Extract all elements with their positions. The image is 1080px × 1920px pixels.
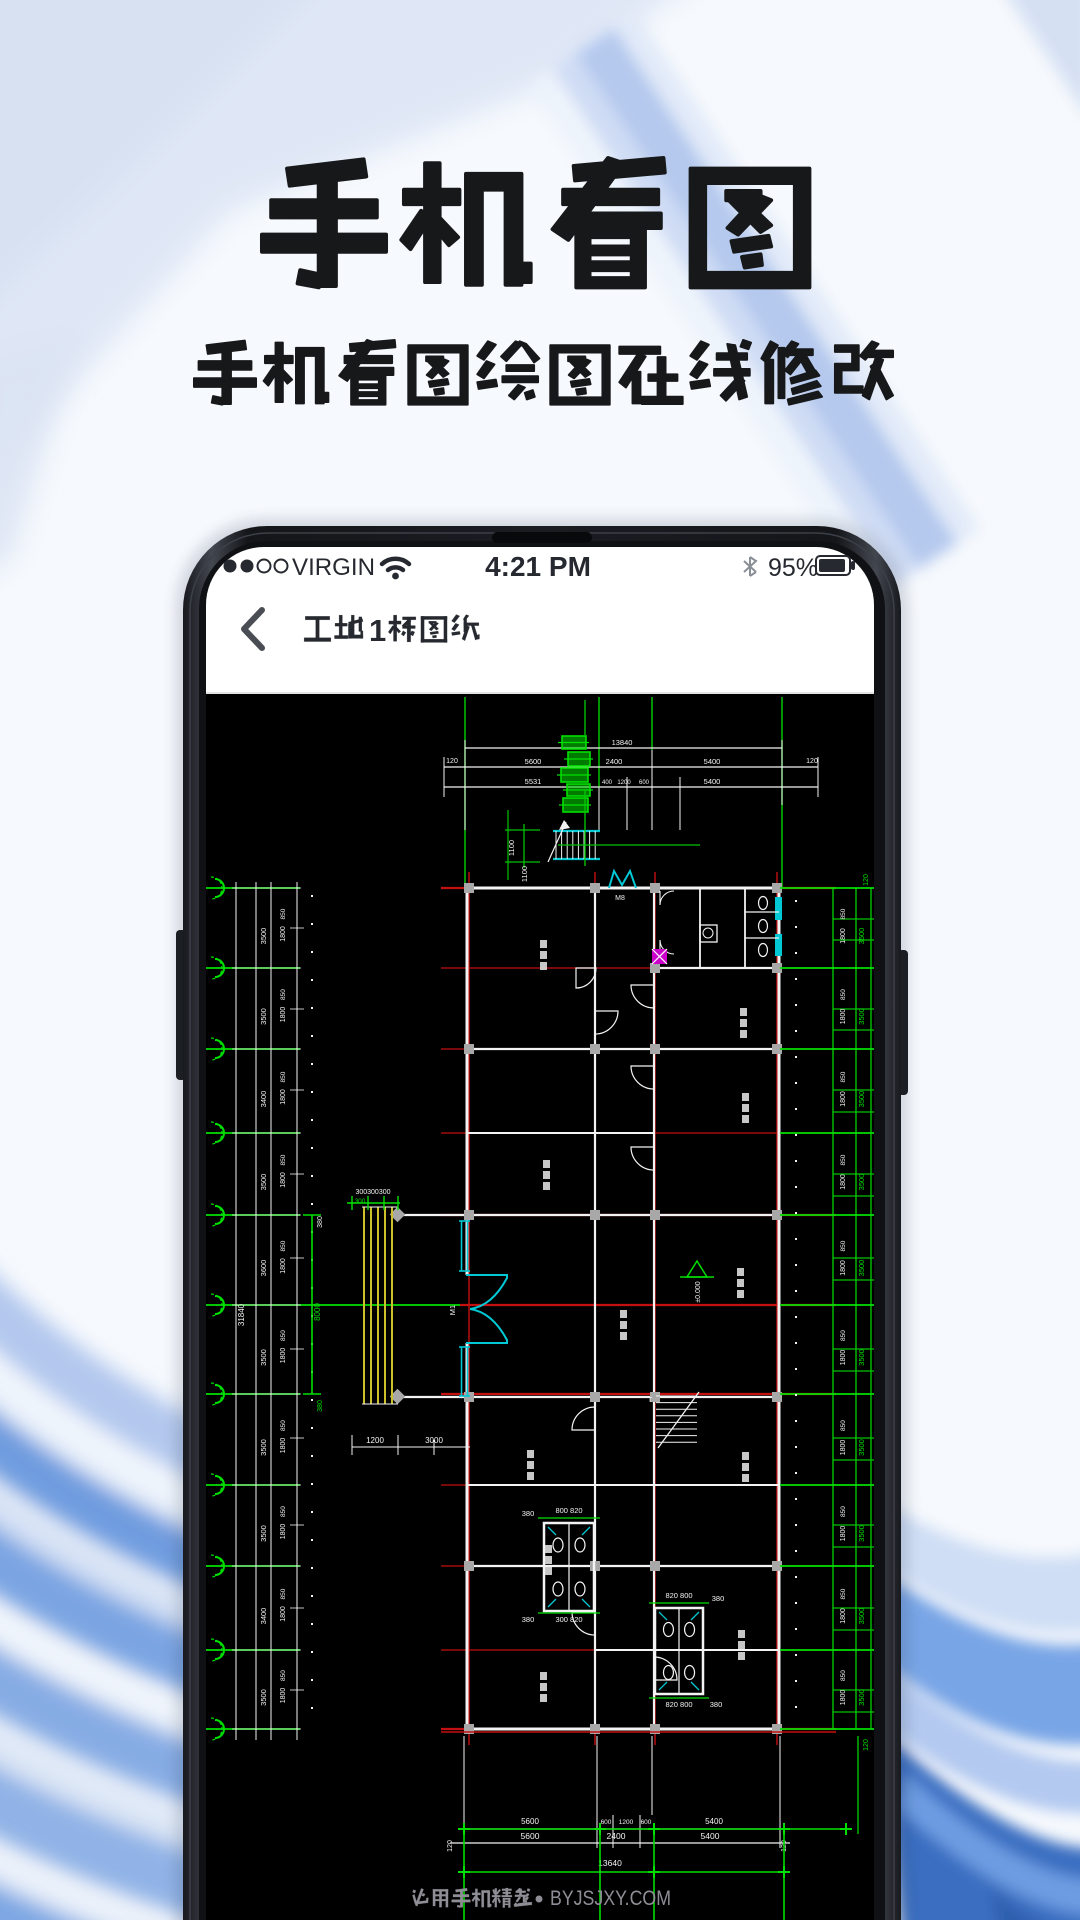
svg-text:120: 120 bbox=[447, 1840, 454, 1852]
svg-text:120: 120 bbox=[863, 1739, 870, 1751]
svg-text:BYJSJXY.COM: BYJSJXY.COM bbox=[550, 1887, 671, 1910]
svg-text:850: 850 bbox=[280, 908, 287, 919]
svg-text:300300300: 300300300 bbox=[355, 1189, 390, 1196]
svg-text:1800: 1800 bbox=[280, 1089, 287, 1105]
svg-text:3500: 3500 bbox=[259, 1174, 268, 1191]
svg-text:850: 850 bbox=[840, 1420, 847, 1431]
svg-text:5400: 5400 bbox=[701, 1831, 720, 1841]
svg-text:3500: 3500 bbox=[857, 1174, 866, 1191]
svg-text:850: 850 bbox=[280, 1420, 287, 1431]
svg-text:1800: 1800 bbox=[840, 1526, 847, 1542]
svg-text:1800: 1800 bbox=[280, 1606, 287, 1622]
svg-text:850: 850 bbox=[840, 908, 847, 919]
svg-text:850: 850 bbox=[280, 1670, 287, 1681]
svg-text:1: 1 bbox=[369, 613, 386, 648]
svg-text:M8: M8 bbox=[615, 895, 625, 902]
svg-text:3500: 3500 bbox=[857, 1349, 866, 1366]
svg-text:850: 850 bbox=[840, 989, 847, 1000]
svg-text:300 820: 300 820 bbox=[555, 1615, 582, 1624]
svg-text:M1: M1 bbox=[448, 1305, 457, 1315]
svg-text:3500: 3500 bbox=[259, 1439, 268, 1456]
svg-text:400: 400 bbox=[602, 780, 613, 786]
svg-text:13840: 13840 bbox=[612, 738, 633, 747]
svg-text:380: 380 bbox=[712, 1594, 725, 1603]
svg-text:380: 380 bbox=[317, 1216, 324, 1228]
svg-text:5600: 5600 bbox=[525, 757, 542, 766]
svg-text:820 800: 820 800 bbox=[665, 1700, 692, 1709]
svg-text:5400: 5400 bbox=[704, 777, 721, 786]
svg-text:13640: 13640 bbox=[598, 1858, 622, 1868]
svg-text:3500: 3500 bbox=[857, 928, 866, 945]
svg-text:95%: 95% bbox=[768, 554, 818, 582]
svg-text:3500: 3500 bbox=[259, 1349, 268, 1366]
svg-text:1800: 1800 bbox=[280, 1688, 287, 1704]
svg-text:850: 850 bbox=[280, 1506, 287, 1517]
svg-text:8000: 8000 bbox=[313, 1303, 322, 1321]
svg-text:2400: 2400 bbox=[606, 757, 623, 766]
svg-text:1200: 1200 bbox=[366, 1436, 384, 1445]
svg-text:1200: 1200 bbox=[619, 1819, 634, 1826]
svg-text:1200: 1200 bbox=[617, 780, 631, 786]
svg-text:850: 850 bbox=[840, 1506, 847, 1517]
svg-text:3500: 3500 bbox=[857, 1525, 866, 1542]
svg-text:T: T bbox=[648, 1397, 653, 1404]
svg-text:4:21 PM: 4:21 PM bbox=[485, 551, 591, 582]
svg-text:5400: 5400 bbox=[705, 1817, 723, 1826]
svg-text:1800: 1800 bbox=[840, 1009, 847, 1025]
svg-text:850: 850 bbox=[840, 1588, 847, 1599]
svg-text:3500: 3500 bbox=[857, 1689, 866, 1706]
svg-text:380: 380 bbox=[522, 1509, 535, 1518]
svg-text:2400: 2400 bbox=[607, 1831, 626, 1841]
svg-text:3500: 3500 bbox=[259, 1689, 268, 1706]
svg-text:1800: 1800 bbox=[840, 1350, 847, 1366]
svg-text:850: 850 bbox=[280, 1588, 287, 1599]
svg-text:1800: 1800 bbox=[840, 928, 847, 944]
svg-text:1800: 1800 bbox=[280, 1438, 287, 1454]
svg-text:850: 850 bbox=[840, 1330, 847, 1341]
svg-text:1100: 1100 bbox=[507, 840, 516, 856]
svg-text:±0.000: ±0.000 bbox=[695, 1281, 702, 1302]
svg-text:120: 120 bbox=[446, 758, 458, 765]
svg-text:120: 120 bbox=[863, 874, 870, 886]
svg-text:1800: 1800 bbox=[280, 926, 287, 942]
svg-text:1800: 1800 bbox=[840, 1091, 847, 1107]
svg-text:850: 850 bbox=[280, 1071, 287, 1082]
svg-text:850: 850 bbox=[840, 1240, 847, 1251]
svg-text:1800: 1800 bbox=[280, 1172, 287, 1188]
svg-text:850: 850 bbox=[840, 1670, 847, 1681]
svg-text:850: 850 bbox=[280, 1240, 287, 1251]
svg-text:380: 380 bbox=[522, 1615, 535, 1624]
svg-text:31840: 31840 bbox=[237, 1303, 246, 1326]
svg-text:1800: 1800 bbox=[280, 1348, 287, 1364]
svg-text:3500: 3500 bbox=[857, 1091, 866, 1108]
svg-text:850: 850 bbox=[280, 1330, 287, 1341]
svg-text:3500: 3500 bbox=[259, 928, 268, 945]
svg-text:600: 600 bbox=[639, 780, 650, 786]
svg-text:VIRGIN: VIRGIN bbox=[292, 554, 375, 581]
svg-text:1800: 1800 bbox=[840, 1608, 847, 1624]
svg-text:380: 380 bbox=[317, 1400, 324, 1412]
svg-text:820 800: 820 800 bbox=[665, 1591, 692, 1600]
svg-text:850: 850 bbox=[280, 1154, 287, 1165]
svg-text:5600: 5600 bbox=[521, 1831, 540, 1841]
svg-text:380: 380 bbox=[710, 1700, 723, 1709]
svg-text:600: 600 bbox=[641, 1819, 652, 1826]
svg-text:850: 850 bbox=[280, 989, 287, 1000]
svg-text:1800: 1800 bbox=[840, 1174, 847, 1190]
svg-text:3600: 3600 bbox=[259, 1260, 268, 1277]
svg-text:1800: 1800 bbox=[280, 1007, 287, 1023]
svg-text:600: 600 bbox=[601, 1819, 612, 1826]
svg-text:5531: 5531 bbox=[525, 777, 542, 786]
svg-text:1800: 1800 bbox=[280, 1258, 287, 1274]
svg-text:3500: 3500 bbox=[857, 1439, 866, 1456]
svg-text:3500: 3500 bbox=[259, 1008, 268, 1025]
svg-text:300: 300 bbox=[355, 1198, 366, 1205]
svg-text:850: 850 bbox=[840, 1154, 847, 1165]
svg-text:3400: 3400 bbox=[259, 1608, 268, 1625]
svg-text:1800: 1800 bbox=[840, 1690, 847, 1706]
svg-text:1800: 1800 bbox=[840, 1440, 847, 1456]
svg-text:3000: 3000 bbox=[425, 1436, 443, 1445]
svg-text:1800: 1800 bbox=[280, 1524, 287, 1540]
svg-text:3500: 3500 bbox=[857, 1608, 866, 1625]
svg-text:800 820: 800 820 bbox=[555, 1506, 582, 1515]
svg-text:5400: 5400 bbox=[704, 757, 721, 766]
svg-text:3400: 3400 bbox=[259, 1091, 268, 1108]
svg-text:5600: 5600 bbox=[521, 1817, 539, 1826]
svg-text:1100: 1100 bbox=[520, 866, 529, 882]
svg-text:3500: 3500 bbox=[259, 1525, 268, 1542]
svg-text:3500: 3500 bbox=[857, 1260, 866, 1277]
svg-text:1800: 1800 bbox=[840, 1260, 847, 1276]
svg-text:120: 120 bbox=[806, 758, 818, 765]
svg-text:3500: 3500 bbox=[857, 1008, 866, 1025]
svg-text:850: 850 bbox=[840, 1071, 847, 1082]
